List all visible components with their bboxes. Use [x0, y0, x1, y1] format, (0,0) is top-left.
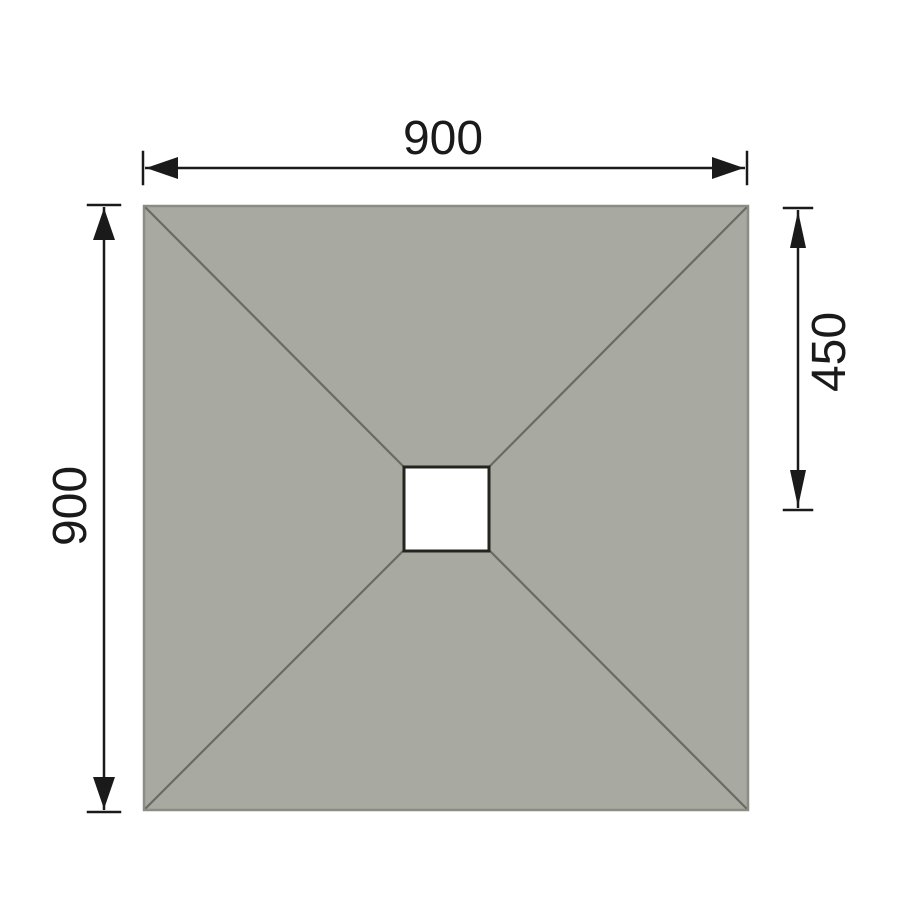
- arrow-left-icon: [146, 157, 178, 179]
- dimension-height-left: 900: [44, 205, 120, 812]
- arrow-up-icon: [93, 208, 115, 240]
- drain-cutout: [404, 467, 489, 551]
- dim-label-drain-offset: 450: [803, 312, 856, 392]
- arrow-up-icon: [790, 211, 806, 248]
- dimension-diagram: 900 900 450: [0, 0, 900, 900]
- arrow-down-icon: [93, 777, 115, 809]
- arrow-right-icon: [712, 157, 744, 179]
- dimension-drain-offset-right: 450: [784, 208, 856, 510]
- diagram-canvas: 900 900 450: [0, 0, 900, 900]
- dim-label-width: 900: [403, 112, 483, 165]
- arrow-down-icon: [790, 470, 806, 507]
- dimension-width-top: 900: [143, 112, 747, 184]
- dim-label-height: 900: [44, 466, 97, 546]
